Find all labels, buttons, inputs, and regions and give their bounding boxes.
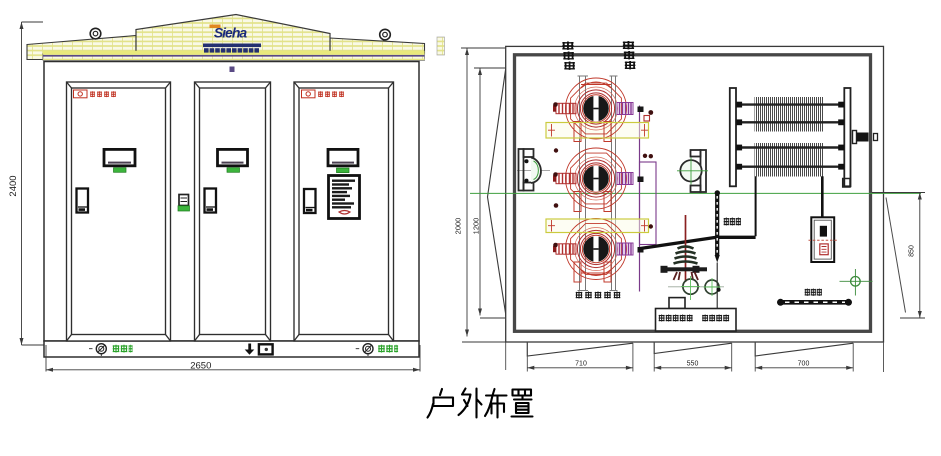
svg-text:1200: 1200 bbox=[472, 218, 481, 235]
svg-text:2000: 2000 bbox=[454, 218, 463, 235]
svg-text:700: 700 bbox=[798, 361, 810, 368]
svg-text:Sieha: Sieha bbox=[214, 25, 248, 41]
svg-text:2650: 2650 bbox=[190, 361, 211, 372]
svg-text:710: 710 bbox=[575, 361, 587, 368]
svg-text:2400: 2400 bbox=[8, 175, 19, 196]
svg-text:850: 850 bbox=[909, 245, 916, 257]
svg-text:550: 550 bbox=[687, 361, 699, 368]
